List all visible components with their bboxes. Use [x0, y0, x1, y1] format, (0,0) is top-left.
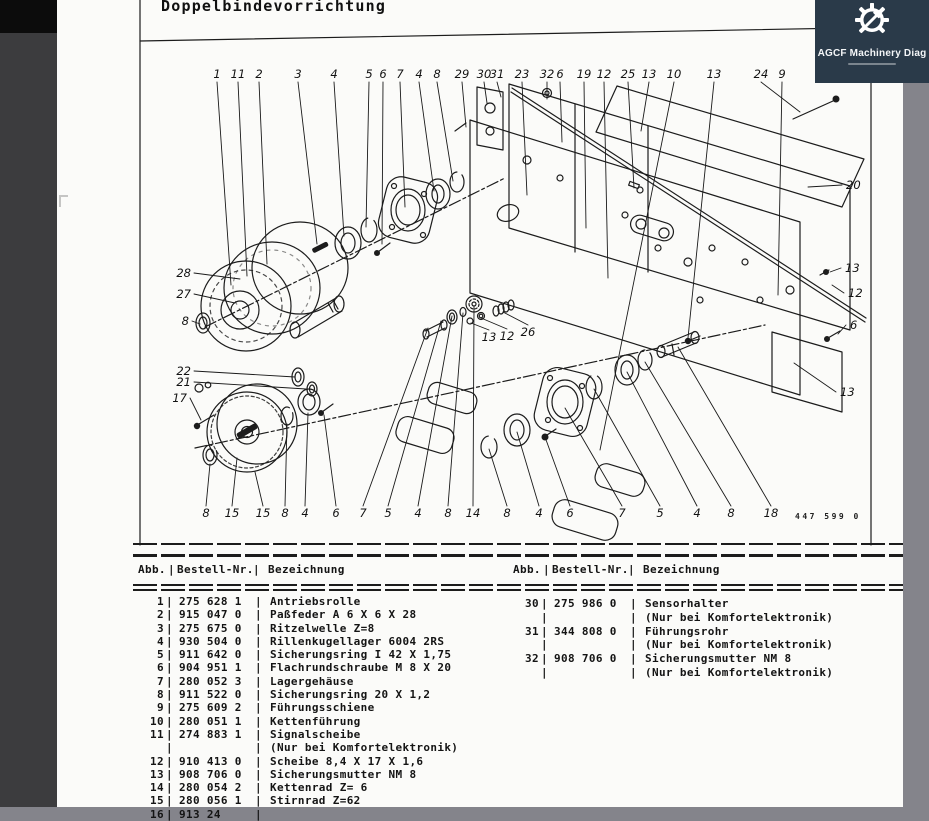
- callout-label-19: 19: [577, 67, 592, 81]
- col-header-bezeichnung: Bezeichnung: [635, 561, 720, 581]
- logo-title: AGCF Machinery Diag: [818, 48, 927, 59]
- parts-table-row: 30|275 986 0|Sensorhalter: [511, 597, 833, 611]
- parts-table-row: 5|911 642 0|Sicherungsring I 42 X 1,75: [136, 648, 458, 661]
- callout-label-15: 15: [225, 506, 240, 520]
- parts-table-row: 32|908 706 0|Sicherungsmutter NM 8: [511, 652, 833, 666]
- parts-table-row: 6|904 951 1|Flachrundschraube M 8 X 20: [136, 661, 458, 674]
- callout-label-13: 13: [845, 261, 860, 275]
- watermark-logo: AGCF Machinery Diag: [815, 0, 929, 83]
- parts-table-row: 15|280 056 1|Stirnrad Z=62: [136, 794, 458, 807]
- callout-label-6: 6: [556, 67, 563, 81]
- callout-leader-line: [832, 285, 844, 293]
- callout-leader-line: [382, 82, 383, 244]
- callout-leader-line: [190, 398, 201, 420]
- parts-table-row: ||(Nur bei Komfortelektronik): [511, 666, 833, 680]
- callout-label-6: 6: [379, 67, 386, 81]
- callout-label-6: 6: [850, 318, 857, 332]
- callout-label-31: 31: [490, 67, 505, 81]
- col-header-bestellnr: Bestell-Nr.: [550, 561, 628, 581]
- callout-leader-line: [489, 449, 507, 506]
- parts-table-left: Abb.|Bestell-Nr.|Bezeichnung 1|275 628 1…: [136, 561, 458, 821]
- callout-leader-line: [678, 347, 771, 506]
- callout-leader-line: [366, 82, 369, 227]
- parts-table-row: 4|930 504 0|Rillenkugellager 6004 2RS: [136, 635, 458, 648]
- callout-label-29: 29: [455, 67, 470, 81]
- callout-label-6: 6: [332, 506, 339, 520]
- callout-label-5: 5: [384, 506, 391, 520]
- callout-label-9: 9: [778, 67, 785, 81]
- callout-leader-line: [627, 372, 697, 506]
- callout-label-12: 12: [500, 329, 515, 343]
- parts-table-header: Abb.|Bestell-Nr.|Bezeichnung: [511, 561, 833, 581]
- callout-leader-line: [628, 82, 634, 188]
- drive-roller-impeller: [196, 222, 348, 351]
- callout-leader-line: [324, 415, 336, 506]
- callout-label-21: 21: [176, 375, 191, 389]
- callout-leader-line: [545, 437, 570, 506]
- callout-label-8: 8: [281, 506, 288, 520]
- callout-label-18: 18: [764, 506, 779, 520]
- parts-table-row: 16|913 24|: [136, 808, 458, 821]
- callout-leader-line: [217, 82, 231, 285]
- callout-leader-line: [594, 389, 660, 506]
- parts-table-row: ||(Nur bei Komfortelektronik): [136, 741, 458, 754]
- callout-leader-line: [305, 413, 308, 506]
- callout-leader-line: [418, 316, 452, 506]
- parts-table-row: 13|908 706 0|Sicherungsmutter NM 8: [136, 768, 458, 781]
- callout-label-24: 24: [754, 67, 769, 81]
- callout-label-8: 8: [444, 506, 451, 520]
- parts-table-row: 12|910 413 0|Scheibe 8,4 X 17 X 1,6: [136, 755, 458, 768]
- col-header-abb: Abb.: [511, 561, 543, 581]
- callout-leader-line: [285, 424, 287, 506]
- parts-table-row: 10|280 051 1|Kettenführung: [136, 715, 458, 728]
- parts-table-row: ||(Nur bei Komfortelektronik): [511, 638, 833, 652]
- callout-leader-line: [517, 432, 539, 506]
- callout-leader-line: [334, 82, 344, 236]
- callout-label-11: 11: [231, 67, 246, 81]
- parts-table-header: Abb.|Bestell-Nr.|Bezeichnung: [136, 561, 458, 581]
- callout-leader-line: [462, 82, 466, 127]
- callout-label-15: 15: [256, 506, 271, 520]
- col-header-bestellnr: Bestell-Nr.: [175, 561, 253, 581]
- frame-panel-assembly: [393, 84, 866, 543]
- parts-table-row: 1|275 628 1|Antriebsrolle: [136, 595, 458, 608]
- callout-label-14: 14: [466, 506, 481, 520]
- callout-label-4: 4: [330, 67, 337, 81]
- callout-label-7: 7: [618, 506, 626, 520]
- callout-label-12: 12: [848, 286, 863, 300]
- gear-hammer-icon: [850, 0, 894, 46]
- lower-shaft-parts: [203, 269, 840, 472]
- callout-label-17: 17: [172, 391, 187, 405]
- callout-leader-line: [255, 472, 263, 506]
- callout-label-4: 4: [535, 506, 542, 520]
- callout-leader-line: [641, 82, 649, 131]
- callout-leader-line: [645, 362, 731, 506]
- parts-table-row: 31|344 808 0|Führungsrohr: [511, 625, 833, 639]
- callout-leader-line: [560, 82, 562, 142]
- callout-label-32: 32: [540, 67, 555, 81]
- logo-tagline: [848, 63, 896, 65]
- parts-table-row: 7|280 052 3|Lagergehäuse: [136, 675, 458, 688]
- callout-leader-line: [400, 82, 405, 207]
- callout-leader-line: [473, 307, 474, 506]
- callout-leader-line: [503, 312, 528, 325]
- col-header-abb: Abb.: [136, 561, 168, 581]
- callout-label-13: 13: [840, 385, 855, 399]
- callout-label-4: 4: [414, 506, 421, 520]
- callout-label-10: 10: [667, 67, 682, 81]
- callout-label-4: 4: [301, 506, 308, 520]
- callout-label-26: 26: [521, 325, 536, 339]
- callout-label-3: 3: [294, 67, 301, 81]
- callout-leader-line: [481, 318, 507, 329]
- callout-label-5: 5: [365, 67, 372, 81]
- callout-leader-line: [238, 82, 247, 276]
- callout-leader-line: [298, 82, 317, 244]
- callout-leader-line: [388, 321, 441, 506]
- callout-label-13: 13: [707, 67, 722, 81]
- callout-label-6: 6: [566, 506, 573, 520]
- callout-label-13: 13: [642, 67, 657, 81]
- parts-table-row: 3|275 675 0|Ritzelwelle Z=8: [136, 622, 458, 635]
- callout-label-20: 20: [846, 178, 861, 192]
- parts-table-row: ||(Nur bei Komfortelektronik): [511, 611, 833, 625]
- col-header-bezeichnung: Bezeichnung: [260, 561, 345, 581]
- callout-label-28: 28: [176, 266, 191, 280]
- callout-label-4: 4: [693, 506, 700, 520]
- callout-leader-line: [206, 464, 210, 506]
- parts-table-row: 2|915 047 0|Paßfeder A 6 X 6 X 28: [136, 608, 458, 621]
- parts-table-right: Abb.|Bestell-Nr.|Bezeichnung 30|275 986 …: [511, 561, 833, 680]
- callout-label-8: 8: [727, 506, 734, 520]
- callout-leader-line: [484, 82, 487, 103]
- drawing-number: 447 599 0: [795, 512, 861, 521]
- callout-label-4: 4: [415, 67, 422, 81]
- document-viewer: { "colors":{"app_bg":"#84848b","page_bg"…: [0, 0, 929, 807]
- callout-leader-line: [761, 82, 800, 112]
- callout-leader-line: [259, 82, 267, 264]
- callout-label-8: 8: [202, 506, 209, 520]
- callout-leader-line: [830, 268, 841, 272]
- callout-label-8: 8: [182, 314, 189, 328]
- callout-label-27: 27: [176, 287, 191, 301]
- callout-label-12: 12: [597, 67, 612, 81]
- callout-leader-line: [437, 82, 453, 181]
- parts-table-row: 14|280 054 2|Kettenrad Z= 6: [136, 781, 458, 794]
- callout-label-13: 13: [482, 330, 497, 344]
- callout-label-7: 7: [359, 506, 367, 520]
- callout-leader-line: [194, 273, 240, 279]
- callout-leader-line: [194, 371, 295, 377]
- callout-label-25: 25: [621, 67, 636, 81]
- table-border-line: [133, 554, 903, 557]
- callout-leader-line: [808, 185, 842, 187]
- callout-label-7: 7: [396, 67, 404, 81]
- callout-label-1: 1: [213, 67, 220, 81]
- callout-leader-line: [497, 82, 501, 97]
- table-border-line: [133, 543, 903, 545]
- parts-table-row: 9|275 609 2|Führungsschiene: [136, 701, 458, 714]
- callout-leader-line: [522, 82, 527, 195]
- parts-table-row: 8|911 522 0|Sicherungsring 20 X 1,2: [136, 688, 458, 701]
- callout-label-8: 8: [433, 67, 440, 81]
- callout-label-23: 23: [515, 67, 530, 81]
- callout-leader-line: [419, 82, 434, 191]
- callout-label-5: 5: [656, 506, 663, 520]
- callout-label-2: 2: [255, 67, 262, 81]
- parts-table-row: 11|274 883 1|Signalscheibe: [136, 728, 458, 741]
- callout-label-8: 8: [503, 506, 510, 520]
